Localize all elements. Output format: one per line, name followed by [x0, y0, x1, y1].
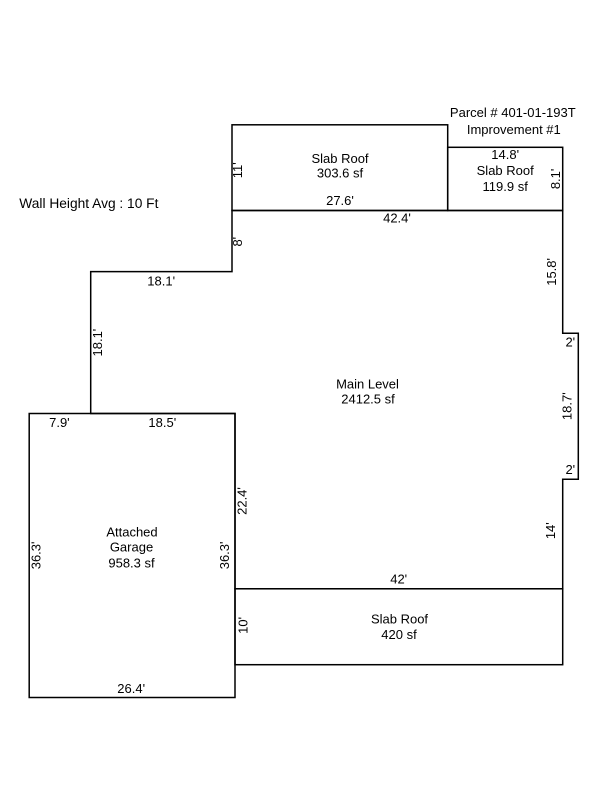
svg-text:18.1': 18.1' — [147, 273, 175, 288]
svg-text:18.5': 18.5' — [148, 415, 176, 430]
svg-text:26.4': 26.4' — [117, 681, 145, 696]
svg-text:27.6': 27.6' — [326, 193, 354, 208]
svg-text:Garage: Garage — [110, 540, 153, 555]
svg-text:Parcel # 401-01-193T: Parcel # 401-01-193T — [450, 105, 576, 120]
svg-text:Slab Roof: Slab Roof — [477, 163, 534, 178]
svg-text:2': 2' — [565, 335, 575, 350]
svg-text:8': 8' — [230, 237, 245, 247]
svg-text:22.4': 22.4' — [235, 487, 250, 515]
svg-text:303.6 sf: 303.6 sf — [317, 166, 364, 181]
svg-text:2412.5 sf: 2412.5 sf — [341, 391, 395, 406]
svg-text:14': 14' — [543, 522, 558, 539]
svg-text:420 sf: 420 sf — [381, 627, 417, 642]
svg-text:36.3': 36.3' — [217, 542, 232, 570]
svg-text:18.1': 18.1' — [90, 329, 105, 357]
svg-text:119.9 sf: 119.9 sf — [483, 179, 529, 194]
svg-text:8.1': 8.1' — [548, 169, 563, 190]
svg-text:11': 11' — [230, 162, 245, 178]
svg-text:Attached: Attached — [106, 525, 157, 540]
svg-text:14.8': 14.8' — [491, 147, 519, 162]
svg-text:10': 10' — [236, 617, 251, 634]
svg-text:Wall Height Avg : 10 Ft: Wall Height Avg : 10 Ft — [19, 196, 158, 211]
svg-text:Slab Roof: Slab Roof — [311, 151, 368, 166]
svg-text:958.3 sf: 958.3 sf — [108, 556, 155, 571]
svg-text:36.3': 36.3' — [29, 542, 44, 570]
svg-text:Improvement #1: Improvement #1 — [467, 122, 561, 137]
svg-text:15.8': 15.8' — [544, 258, 559, 286]
svg-text:2': 2' — [565, 462, 575, 477]
svg-text:18.7': 18.7' — [560, 392, 575, 420]
svg-text:7.9': 7.9' — [49, 415, 70, 430]
svg-text:Main Level: Main Level — [336, 376, 399, 391]
svg-text:42': 42' — [390, 572, 407, 587]
svg-text:Slab Roof: Slab Roof — [371, 611, 428, 626]
svg-text:42.4': 42.4' — [383, 211, 411, 226]
